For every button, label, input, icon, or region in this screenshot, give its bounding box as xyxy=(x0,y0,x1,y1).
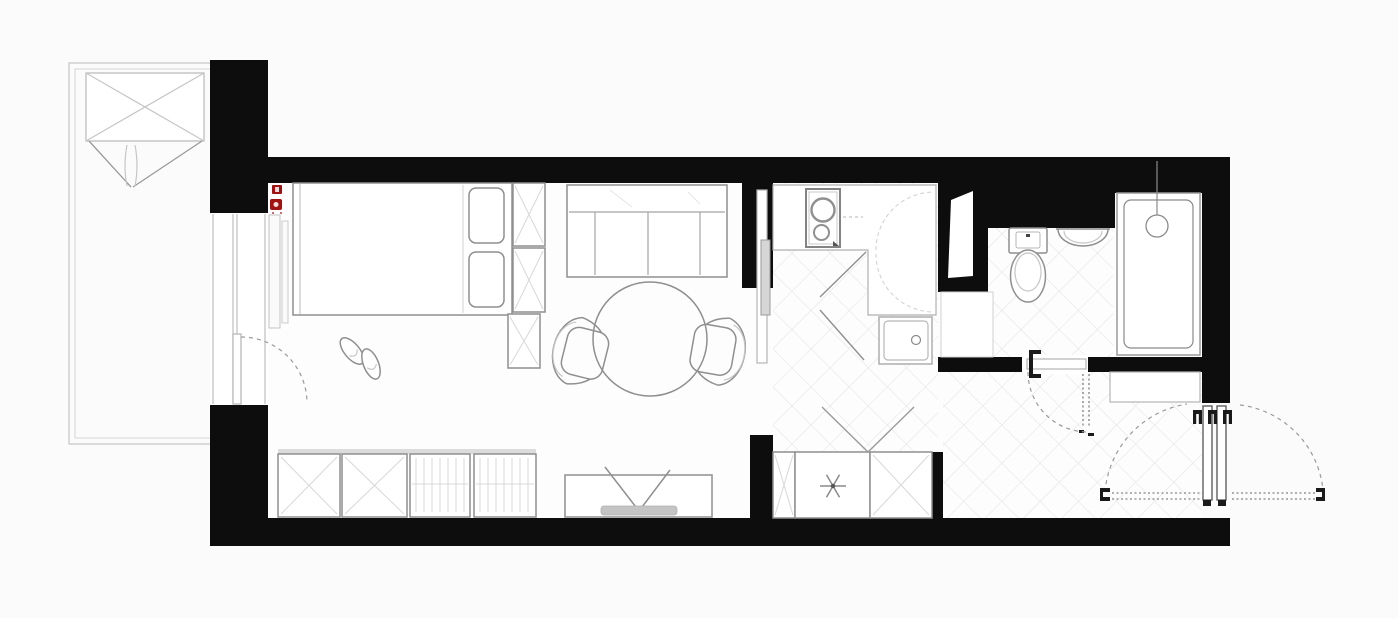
wall-right xyxy=(1202,193,1230,403)
floor-plan-screenshot xyxy=(0,0,1398,618)
pillow-2 xyxy=(469,252,504,307)
bathroom-floor xyxy=(988,228,1113,357)
bathroom-door-leaf xyxy=(1027,359,1086,369)
wall-top-right xyxy=(1115,157,1230,193)
double-bed xyxy=(293,183,512,315)
sink-drain xyxy=(912,336,921,345)
pillow-1 xyxy=(469,188,504,243)
radiator xyxy=(269,215,288,328)
storage-cabinet-row xyxy=(278,449,536,517)
storage-box-4 xyxy=(474,454,536,517)
tv-console xyxy=(565,467,712,517)
wall-bathroom-bottom-left xyxy=(938,357,1022,372)
sofa xyxy=(567,185,727,277)
shower-head xyxy=(1146,215,1168,237)
tv-screen xyxy=(601,506,677,515)
kitchen-sink xyxy=(879,317,932,364)
cooktop xyxy=(806,189,840,247)
hall-cabinet xyxy=(1110,372,1200,402)
partition-hall-stub xyxy=(750,435,773,518)
balcony-door-leaf xyxy=(233,334,241,404)
wall-bathroom-bottom-right xyxy=(1088,357,1202,372)
closet-side-stub xyxy=(932,452,943,518)
wall-top xyxy=(210,157,940,183)
wardrobe-column xyxy=(508,183,545,368)
floor-plan xyxy=(0,0,1398,618)
wall-bottom xyxy=(210,518,1230,546)
toilet xyxy=(1009,228,1047,302)
balcony-awning-box xyxy=(86,73,204,141)
duct-shaft xyxy=(948,191,973,278)
wall-niche xyxy=(941,292,993,357)
wall-left-upper xyxy=(210,60,268,213)
